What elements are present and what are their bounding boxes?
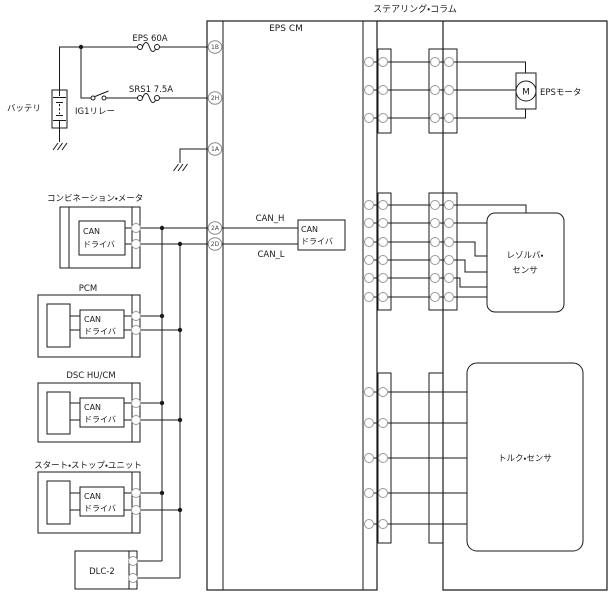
dlc2-label: DLC-2	[89, 567, 115, 577]
dsc-inner-module	[47, 392, 70, 434]
torque-sensor: トルク・センサ	[467, 363, 583, 551]
wire-can-hl	[222, 228, 298, 244]
junction-dot	[160, 491, 164, 495]
fuse-eps-label: EPS 60A	[132, 34, 167, 44]
dlc2-wires	[137, 561, 180, 578]
can-driver-line1: CAN	[84, 403, 101, 412]
pcm-inner-module	[47, 304, 70, 347]
can-l-label: CAN_L	[257, 250, 284, 260]
junction-dot	[160, 226, 164, 230]
pcm-label: PCM	[79, 284, 97, 294]
can-driver-line1: CAN	[84, 492, 101, 501]
dlc2: DLC-2	[75, 551, 180, 589]
can-driver-line1: CAN	[84, 315, 101, 324]
connector-circle	[132, 326, 141, 335]
wiring-diagram-page: EPS CM ステアリング・コラム バッテリ EPS 60A IG1リレー SR…	[0, 0, 613, 594]
connector-circle	[129, 574, 138, 583]
eps-cm-pins: 1B 2H 1A 2A 2D	[208, 41, 222, 250]
power-wiring: EPS 60A IG1リレー SRS1 7.5A	[53, 34, 208, 171]
can-driver-line2: ドライバ	[84, 327, 116, 336]
battery-label: バッテリ	[7, 104, 41, 114]
resolver-label-line1: レゾルバ・	[507, 251, 544, 261]
combination-meter-label: コンビネーション・メータ	[47, 194, 143, 204]
connector-circle	[132, 312, 141, 321]
junction-dot	[178, 242, 182, 246]
ground-icon	[53, 143, 67, 150]
eps-motor: M EPSモータ	[516, 73, 581, 109]
pin-2d-label: 2D	[211, 241, 220, 248]
connector-circle	[132, 489, 141, 498]
torque-circuit: トルク・センサ	[364, 363, 583, 551]
resolver-sensor: レゾルバ・ センサ	[487, 213, 564, 312]
junction-dot	[178, 418, 182, 422]
motor-m-label: M	[522, 88, 530, 98]
dsc-label: DSC HU/CM	[66, 371, 115, 381]
eps-cm-box: EPS CM	[207, 21, 377, 590]
connector-circle	[132, 506, 141, 515]
can-driver-line1: CAN	[83, 227, 100, 236]
eps-cm-outline	[207, 21, 377, 590]
motor-wire-extensions	[457, 62, 526, 118]
connector-circle	[132, 224, 141, 233]
steering-column-label: ステアリング・コラム	[373, 3, 457, 15]
junction-dot	[160, 314, 164, 318]
motor-circuit: M EPSモータ	[364, 49, 581, 133]
pin-2a-label: 2A	[211, 225, 220, 232]
start-stop-unit: スタート・ストップ・ユニット CAN ドライバ	[34, 461, 182, 533]
combination-meter-strips	[69, 207, 132, 268]
ig1-relay-switch-icon	[91, 91, 109, 100]
eps-cm-label: EPS CM	[269, 24, 303, 34]
torque-sensor-label: トルク・センサ	[498, 454, 552, 464]
battery: バッテリ	[7, 90, 67, 128]
resolver-circuit: レゾルバ・ センサ	[364, 193, 564, 312]
fuse-srs-label: SRS1 7.5A	[129, 85, 173, 95]
resolver-label-line2: センサ	[512, 266, 538, 276]
can-driver-line2: ドライバ	[301, 237, 333, 246]
junction-dot	[178, 508, 182, 512]
start-stop-label: スタート・ストップ・ユニット	[34, 461, 142, 471]
pin-1b-label: 1B	[211, 44, 219, 51]
start-stop-inner-module	[47, 481, 70, 524]
can-bus-trunks	[162, 228, 180, 578]
connector-circle	[129, 557, 138, 566]
can-driver-line2: ドライバ	[84, 504, 116, 513]
combination-meter-outline	[60, 207, 140, 268]
can-driver-line2: ドライバ	[84, 415, 116, 424]
pcm: PCM CAN ドライバ	[38, 284, 182, 357]
eps-motor-label: EPSモータ	[540, 88, 581, 98]
can-driver-line2: ドライバ	[83, 240, 115, 249]
wire-1a-ground	[180, 149, 208, 163]
dsc-hu-cm: DSC HU/CM CAN ドライバ	[38, 371, 182, 442]
can-h-label: CAN_H	[256, 214, 285, 224]
relay-label: IG1リレー	[75, 107, 115, 117]
resolver-outline	[487, 213, 564, 312]
junction-dot	[178, 328, 182, 332]
connector-circle	[132, 240, 141, 249]
pin-2h-label: 2H	[211, 95, 219, 102]
connector-circle	[132, 416, 141, 425]
pin-1a-label: 1A	[211, 146, 220, 153]
combination-meter: コンビネーション・メータ CAN ドライバ	[47, 194, 208, 268]
eps-cm-pin-strips	[223, 21, 363, 590]
can-bus-lines	[162, 228, 180, 578]
steering-column-outline	[377, 21, 607, 590]
ground-icon	[174, 164, 188, 171]
wire-batt-to-1b	[60, 47, 209, 90]
junction-dot	[160, 401, 164, 405]
connector-circle	[132, 399, 141, 408]
eps-wiring-diagram: EPS CM ステアリング・コラム バッテリ EPS 60A IG1リレー SR…	[0, 0, 613, 594]
can-driver-line1: CAN	[301, 225, 318, 234]
eps-cm-can-driver: CAN_H CAN_L CAN ドライバ	[222, 214, 345, 260]
